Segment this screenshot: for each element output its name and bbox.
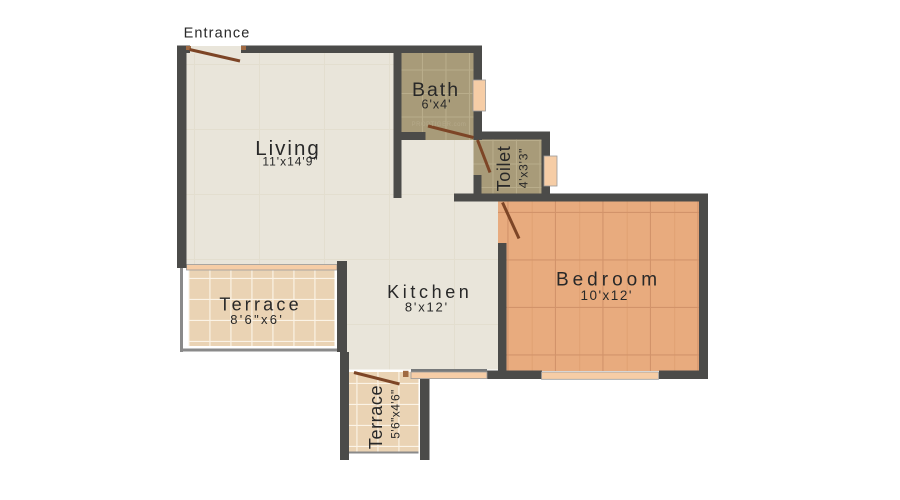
svg-text:Terrace: Terrace xyxy=(366,385,386,449)
svg-text:Entrance: Entrance xyxy=(184,26,251,42)
svg-text:4'x3'3": 4'x3'3" xyxy=(517,148,531,188)
svg-text:PROPTIGER.com: PROPTIGER.com xyxy=(412,122,467,128)
svg-text:Toilet: Toilet xyxy=(494,146,514,192)
svg-text:5'6"x4'6": 5'6"x4'6" xyxy=(389,389,403,438)
svg-text:8'6"x6': 8'6"x6' xyxy=(230,312,284,327)
svg-text:10'x12': 10'x12' xyxy=(580,288,632,303)
svg-text:8'x12': 8'x12' xyxy=(405,300,449,315)
svg-text:11'x14'9": 11'x14'9" xyxy=(262,155,318,169)
svg-text:6'x4': 6'x4' xyxy=(422,98,452,112)
